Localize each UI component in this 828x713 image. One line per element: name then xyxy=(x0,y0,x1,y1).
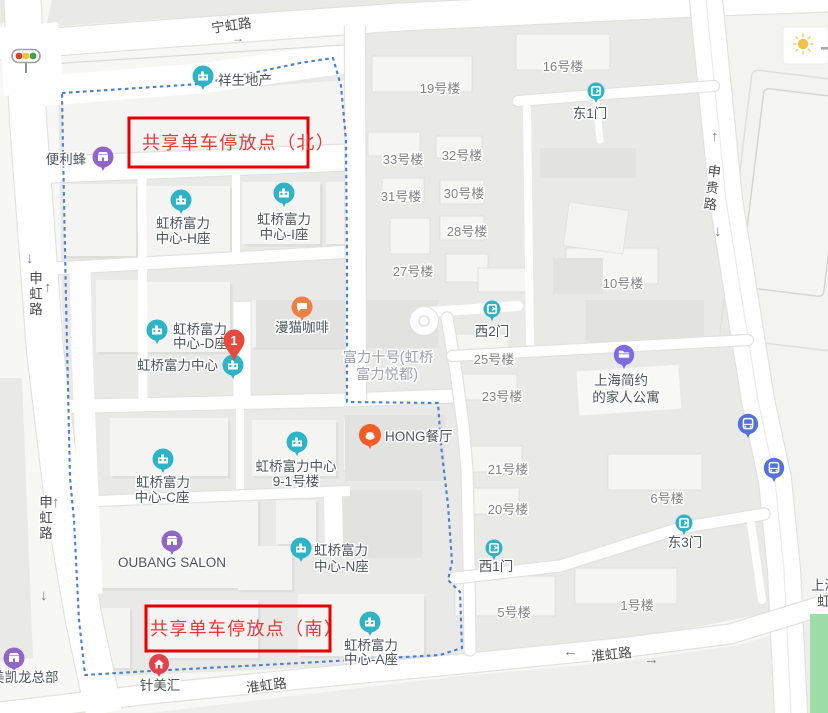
svg-text:1号楼: 1号楼 xyxy=(620,598,653,613)
svg-text:虹桥富力: 虹桥富力 xyxy=(156,215,210,231)
svg-text:31号楼: 31号楼 xyxy=(381,189,421,204)
svg-text:上海: 上海 xyxy=(811,578,828,593)
svg-text:30号楼: 30号楼 xyxy=(444,186,484,201)
svg-text:申: 申 xyxy=(29,271,43,286)
svg-text:→: → xyxy=(232,31,244,45)
svg-text:的家人公寓: 的家人公寓 xyxy=(592,389,660,405)
svg-text:→: → xyxy=(644,651,659,668)
svg-text:虹桥富力: 虹桥富力 xyxy=(173,321,227,337)
svg-text:共享单车停放点（北）: 共享单车停放点（北） xyxy=(142,133,335,153)
svg-text:路: 路 xyxy=(29,302,43,317)
svg-text:虹桥富力: 虹桥富力 xyxy=(257,211,311,227)
svg-text:21号楼: 21号楼 xyxy=(488,462,528,477)
svg-text:路: 路 xyxy=(39,526,53,541)
svg-text:上海简约: 上海简约 xyxy=(594,372,648,388)
svg-text:33号楼: 33号楼 xyxy=(383,152,423,167)
svg-text:美凯龙总部: 美凯龙总部 xyxy=(0,670,59,685)
svg-text:富力十号(虹桥: 富力十号(虹桥 xyxy=(343,348,434,366)
svg-text:虹桥: 虹桥 xyxy=(817,594,828,609)
svg-text:32号楼: 32号楼 xyxy=(442,148,482,163)
svg-text:祥生地产: 祥生地产 xyxy=(218,73,272,88)
svg-text:便利蜂: 便利蜂 xyxy=(46,152,87,167)
svg-text:23号楼: 23号楼 xyxy=(482,389,522,404)
svg-text:9-1号楼: 9-1号楼 xyxy=(273,474,320,489)
svg-text:虹桥富力中心: 虹桥富力中心 xyxy=(137,357,218,373)
svg-text:虹桥富力: 虹桥富力 xyxy=(136,474,190,490)
svg-text:28号楼: 28号楼 xyxy=(447,224,487,239)
svg-text:东1门: 东1门 xyxy=(573,106,608,121)
svg-text:↓: ↓ xyxy=(26,250,34,267)
svg-text:漫猫咖啡: 漫猫咖啡 xyxy=(275,320,329,335)
svg-text:20号楼: 20号楼 xyxy=(488,502,528,517)
svg-text:路: 路 xyxy=(703,196,719,213)
svg-text:中心-A座: 中心-A座 xyxy=(344,652,398,667)
svg-text:↓: ↓ xyxy=(40,587,48,604)
svg-text:中心-H座: 中心-H座 xyxy=(156,231,211,246)
svg-text:19号楼: 19号楼 xyxy=(420,81,460,96)
svg-text:贵: 贵 xyxy=(705,180,720,197)
svg-text:↑: ↑ xyxy=(711,128,719,145)
svg-text:富力悦都): 富力悦都) xyxy=(356,365,418,383)
svg-text:虹桥富力中心: 虹桥富力中心 xyxy=(256,458,337,474)
svg-text:中心-N座: 中心-N座 xyxy=(314,559,369,574)
svg-text:10号楼: 10号楼 xyxy=(603,276,643,291)
svg-text:虹桥富力: 虹桥富力 xyxy=(344,637,398,653)
svg-text:东3门: 东3门 xyxy=(668,535,703,550)
svg-text:OUBANG SALON: OUBANG SALON xyxy=(118,555,226,570)
svg-text:25号楼: 25号楼 xyxy=(474,352,514,367)
svg-text:西1门: 西1门 xyxy=(479,559,514,574)
svg-text:HONG餐厅: HONG餐厅 xyxy=(385,429,453,444)
svg-text:↑: ↑ xyxy=(44,279,52,296)
svg-text:↓: ↓ xyxy=(714,223,722,240)
svg-text:虹: 虹 xyxy=(29,287,43,302)
svg-text:中心-I座: 中心-I座 xyxy=(260,227,309,242)
svg-text:中心-C座: 中心-C座 xyxy=(135,490,190,505)
svg-text:申: 申 xyxy=(707,163,722,180)
svg-text:申: 申 xyxy=(39,495,53,510)
svg-text:虹: 虹 xyxy=(39,511,53,526)
svg-text:西2门: 西2门 xyxy=(475,324,510,339)
svg-text:虹桥富力: 虹桥富力 xyxy=(314,542,368,558)
svg-text:16号楼: 16号楼 xyxy=(543,59,583,74)
svg-text:共享单车停放点（南）: 共享单车停放点（南） xyxy=(150,619,343,639)
svg-text:针美汇: 针美汇 xyxy=(140,678,181,693)
svg-text:←: ← xyxy=(563,643,578,660)
svg-text:6号楼: 6号楼 xyxy=(650,491,683,506)
svg-text:27号楼: 27号楼 xyxy=(393,264,433,279)
svg-text:中心-D座: 中心-D座 xyxy=(173,336,228,351)
svg-text:5号楼: 5号楼 xyxy=(497,605,530,620)
svg-text:↑: ↑ xyxy=(52,494,60,511)
